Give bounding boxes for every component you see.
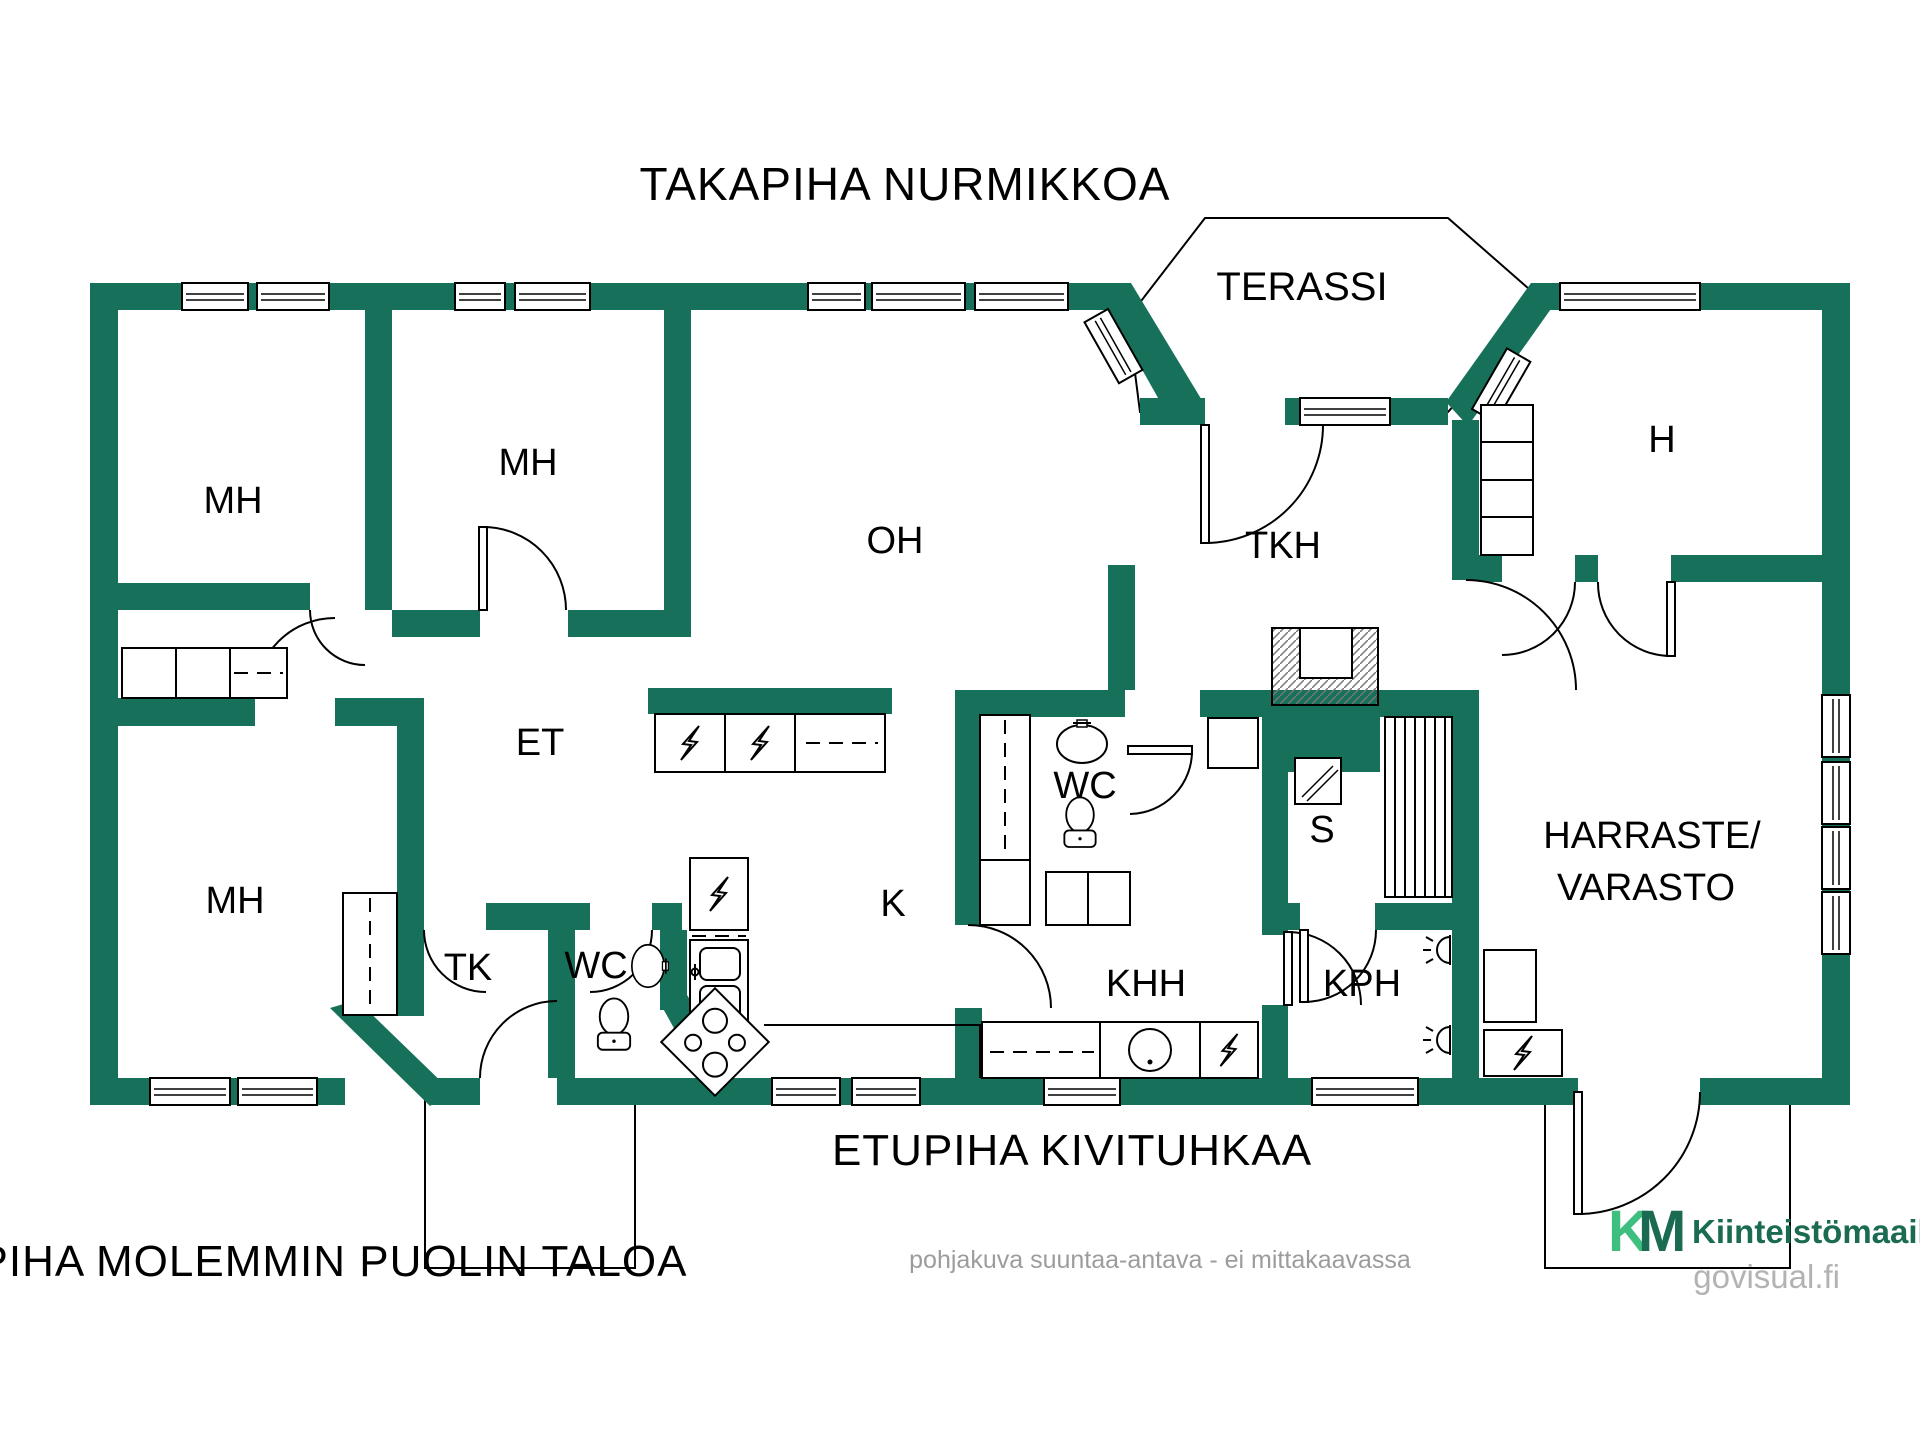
room-label-mh-top-mid: MH (498, 442, 557, 484)
sauna-benches (1385, 717, 1452, 897)
bedroom-wardrobe (343, 893, 397, 1015)
window-icon (1560, 283, 1700, 310)
room-label-kph: KPH (1323, 963, 1401, 1005)
kitchen-upper-cabinet (690, 858, 748, 936)
floor-plan-page: TAKAPIHA NURMIKKOA TERASSI MH MH MH OH T… (0, 0, 1920, 1440)
window-icon (1822, 762, 1850, 824)
window-icon (455, 283, 505, 310)
fireplace (1272, 628, 1378, 705)
storage-electrical-panel (1484, 1030, 1562, 1076)
room-label-h: H (1648, 419, 1675, 461)
door-arc-icon (1466, 580, 1576, 690)
storage-cabinet (1484, 950, 1536, 1022)
km-logo-m: M (1638, 1199, 1686, 1264)
room-label-wc-middle: WC (1053, 765, 1116, 807)
window-icon (852, 1078, 920, 1105)
window-icon (1822, 827, 1850, 889)
company-name: Kiinteistömaailma (1692, 1213, 1920, 1250)
h-room-wardrobe (1481, 405, 1533, 555)
hall-wardrobe (122, 648, 287, 698)
door-arc-icon (480, 1001, 557, 1078)
sauna-window (1295, 758, 1341, 804)
caption-front-yard: ETUPIHA KIVITUHKAA (832, 1126, 1312, 1175)
wc-middle-sink (1057, 720, 1107, 763)
room-label-k: K (880, 883, 905, 925)
caption-disclaimer: pohjakuva suuntaa-antava - ei mittakaava… (909, 1246, 1411, 1274)
caption-back-yard: TAKAPIHA NURMIKKOA (640, 158, 1171, 210)
wc-entry-toilet (598, 998, 630, 1049)
floor-plan-drawing: TAKAPIHA NURMIKKOA TERASSI MH MH MH OH T… (0, 0, 1920, 1440)
door-arc-icon (310, 610, 365, 665)
door-arc-icon (479, 527, 566, 610)
caption-side-yard: PIHA MOLEMMIN PUOLIN TALOA (0, 1237, 687, 1286)
room-label-et: ET (516, 722, 565, 764)
door-arc-icon (1128, 746, 1192, 814)
khh-counter (982, 1022, 1258, 1078)
room-label-wc-entry: WC (564, 945, 627, 987)
window-icon (257, 283, 329, 310)
door-arc-icon (1598, 582, 1675, 656)
window-icon (238, 1078, 317, 1105)
room-label-varasto: VARASTO (1557, 867, 1735, 909)
window-icon (1312, 1078, 1418, 1105)
room-label-mh-top-left: MH (203, 480, 262, 522)
kph-light-icon (1423, 935, 1450, 965)
window-icon (1300, 398, 1390, 425)
khh-tall-cabinet (980, 715, 1030, 925)
window-icon (150, 1078, 230, 1105)
window-icon (872, 283, 965, 310)
window-icon (1822, 695, 1850, 757)
kph-light-icon (1423, 1025, 1450, 1055)
window-icon (975, 283, 1068, 310)
room-label-s: S (1309, 809, 1334, 851)
room-label-harraste: HARRASTE/ (1543, 815, 1761, 857)
door-arc-icon (1502, 582, 1575, 655)
room-label-tkh: TKH (1245, 525, 1321, 567)
room-label-mh-bottom-left: MH (205, 880, 264, 922)
room-label-oh: OH (867, 520, 924, 562)
window-icon (515, 283, 590, 310)
branding: K M Kiinteistömaailma govisual.fi (1608, 1199, 1920, 1295)
window-icon (808, 283, 865, 310)
room-label-tk: TK (444, 947, 493, 989)
tkh-cabinet (1208, 718, 1258, 768)
watermark-site: govisual.fi (1693, 1258, 1840, 1295)
et-electrical-panel (655, 714, 885, 772)
window-icon (1044, 1078, 1120, 1105)
room-label-khh: KHH (1106, 963, 1186, 1005)
room-label-terassi: TERASSI (1216, 265, 1387, 309)
window-icon (182, 283, 248, 310)
window-icon (1822, 892, 1850, 954)
khh-cabinet (1046, 872, 1130, 925)
window-icon (772, 1078, 840, 1105)
